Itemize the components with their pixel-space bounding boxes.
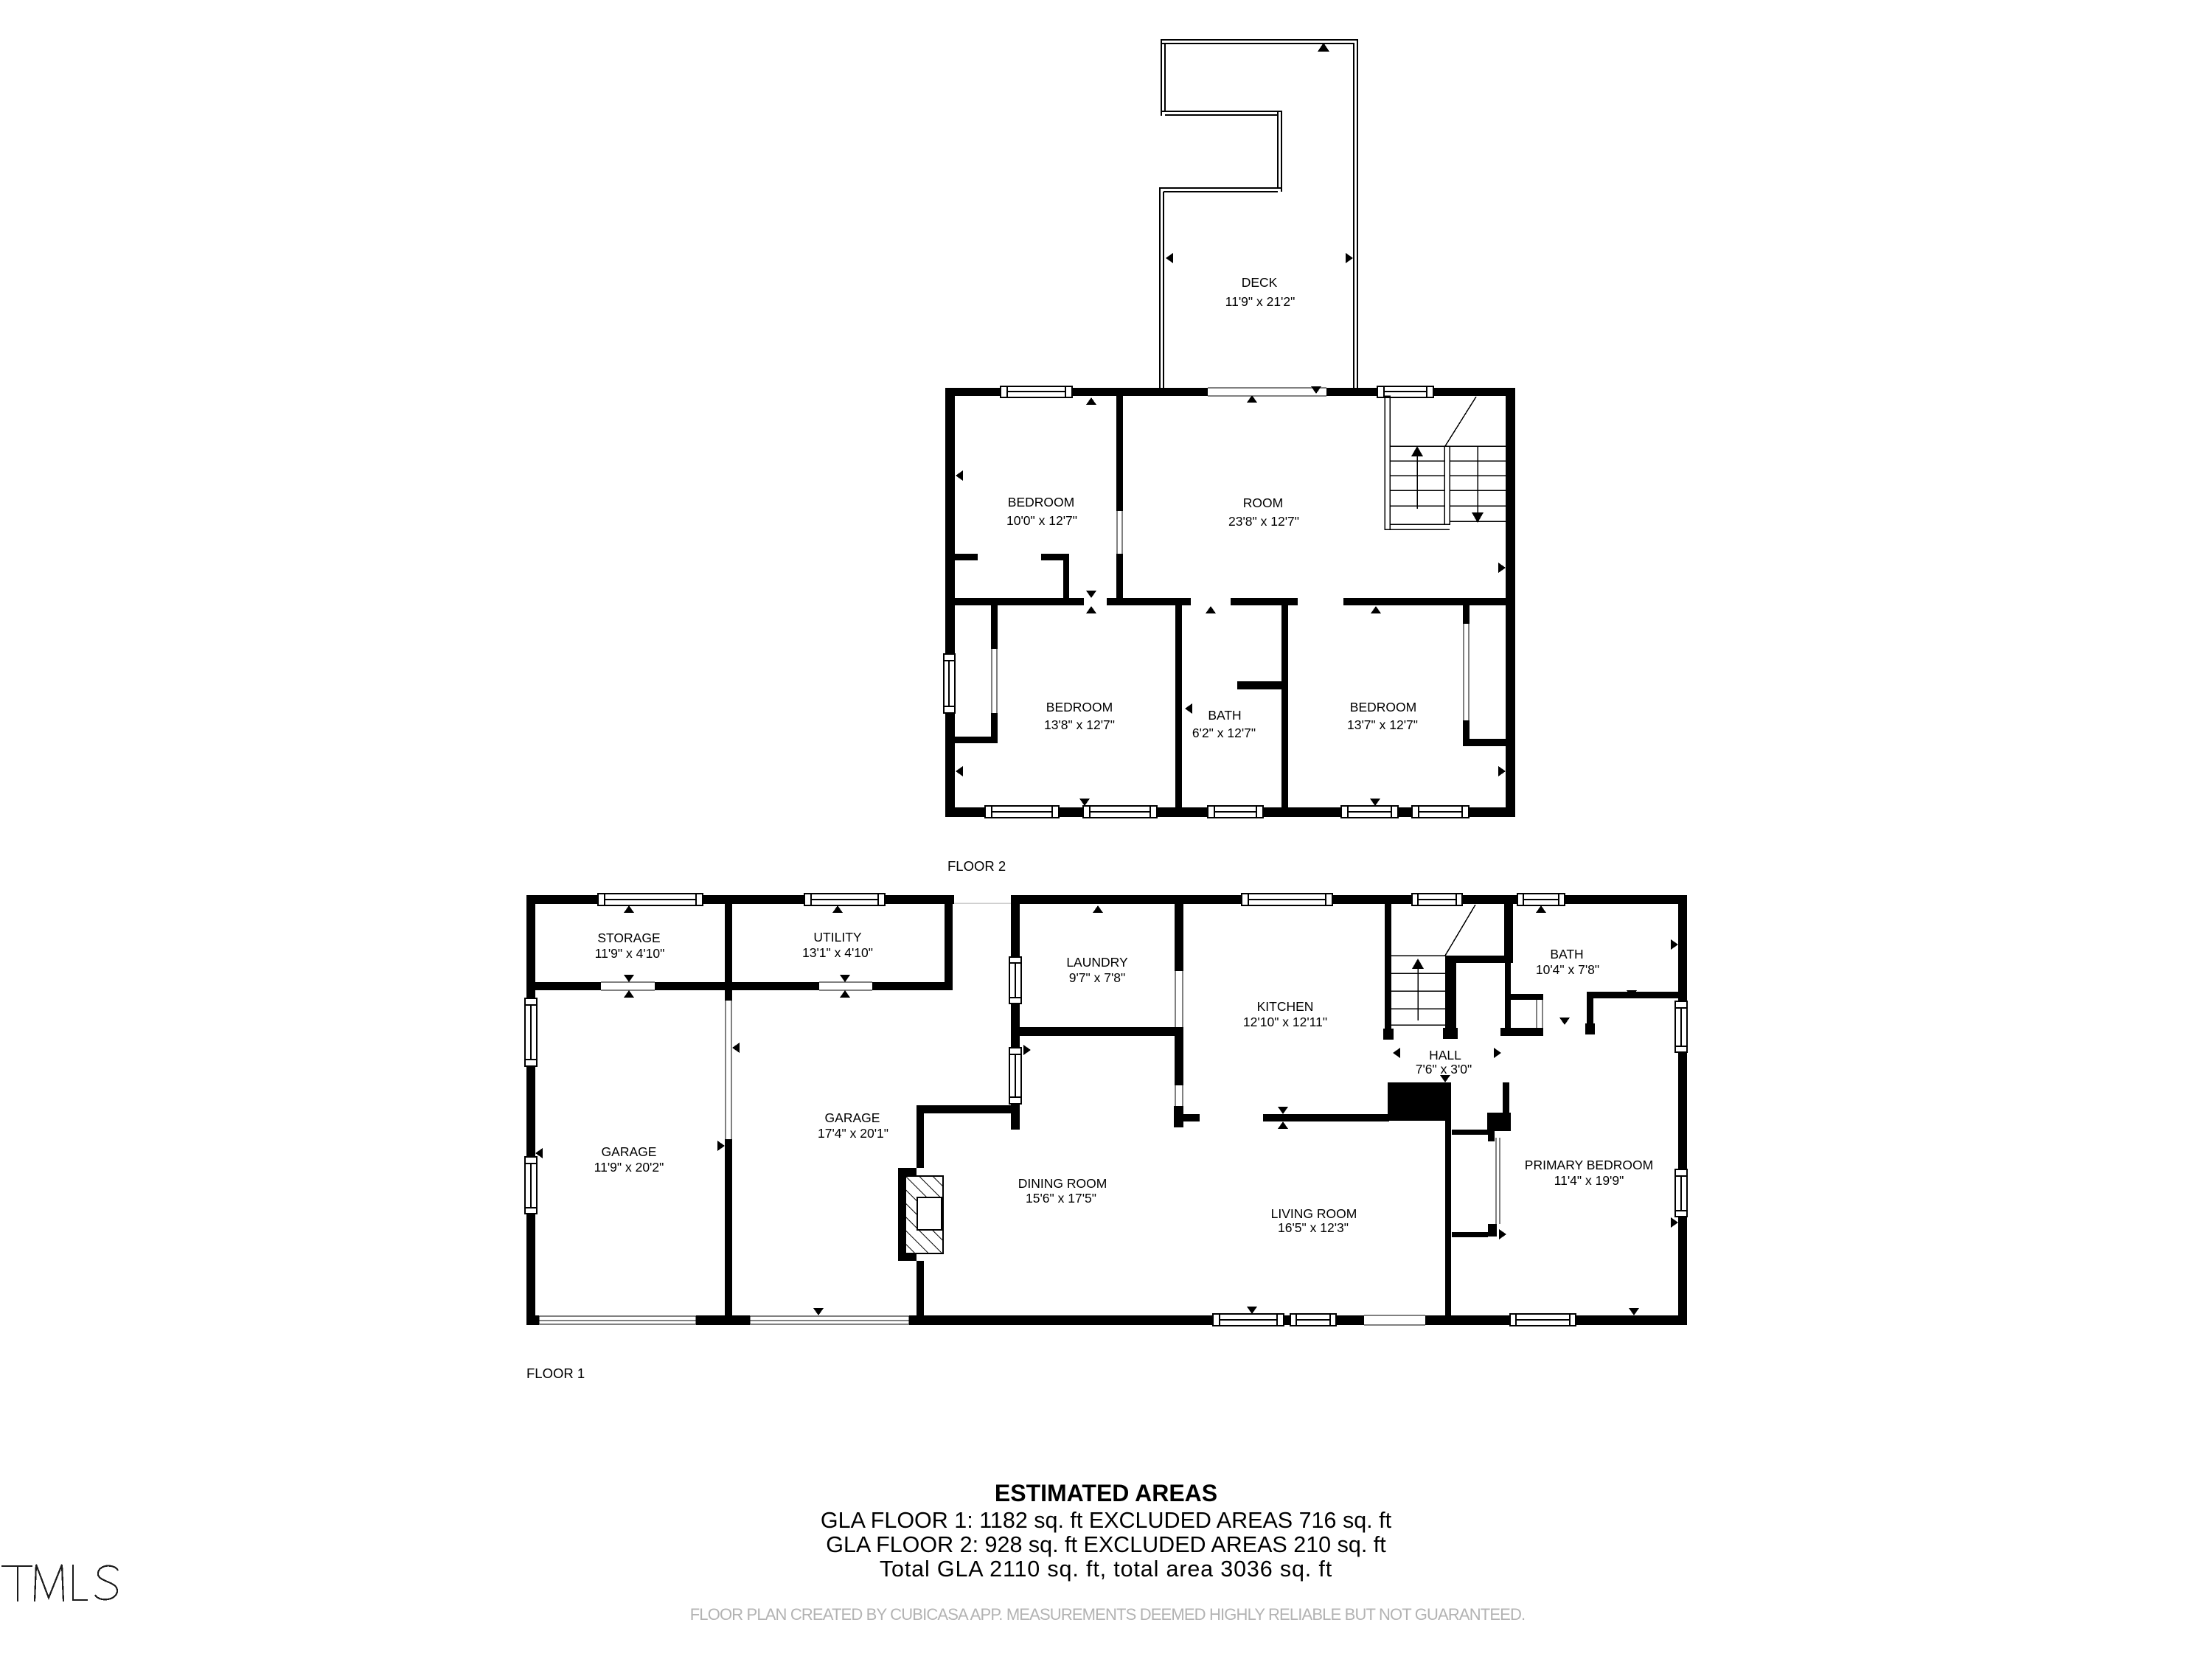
svg-text:BEDROOM: BEDROOM [1350, 700, 1416, 714]
svg-text:10'4" x 7'8": 10'4" x 7'8" [1536, 962, 1599, 977]
svg-text:HALL: HALL [1429, 1048, 1461, 1062]
svg-text:UTILITY: UTILITY [813, 930, 861, 945]
svg-text:KITCHEN: KITCHEN [1257, 999, 1314, 1014]
svg-text:12'10" x 12'11": 12'10" x 12'11" [1243, 1015, 1327, 1029]
svg-text:13'1" x 4'10": 13'1" x 4'10" [802, 945, 873, 960]
svg-text:10'0" x 12'7": 10'0" x 12'7" [1006, 513, 1077, 528]
svg-text:FLOOR 2: FLOOR 2 [947, 858, 1006, 874]
svg-text:6'2" x 12'7": 6'2" x 12'7" [1192, 726, 1256, 740]
svg-text:15'6" x 17'5": 15'6" x 17'5" [1026, 1191, 1096, 1206]
svg-text:DECK: DECK [1242, 275, 1278, 290]
svg-text:11'4" x 19'9": 11'4" x 19'9" [1554, 1173, 1624, 1188]
svg-text:BEDROOM: BEDROOM [1046, 700, 1113, 714]
svg-text:13'7" x 12'7": 13'7" x 12'7" [1347, 717, 1418, 732]
svg-text:13'8" x 12'7": 13'8" x 12'7" [1044, 717, 1115, 732]
svg-text:Total GLA 2110 sq. ft, total a: Total GLA 2110 sq. ft, total area 3036 s… [880, 1557, 1332, 1582]
svg-text:GLA FLOOR 1: 1182 sq. ft EXCLU: GLA FLOOR 1: 1182 sq. ft EXCLUDED AREAS … [821, 1508, 1392, 1533]
svg-text:16'5" x 12'3": 16'5" x 12'3" [1278, 1220, 1349, 1235]
svg-text:11'9" x 20'2": 11'9" x 20'2" [594, 1160, 664, 1175]
svg-text:LAUNDRY: LAUNDRY [1066, 955, 1128, 970]
svg-text:GARAGE: GARAGE [602, 1144, 657, 1159]
svg-text:FLOOR PLAN CREATED BY CUBICASA: FLOOR PLAN CREATED BY CUBICASA APP. MEAS… [690, 1605, 1526, 1624]
svg-text:BATH: BATH [1550, 947, 1583, 961]
svg-text:ROOM: ROOM [1243, 495, 1283, 510]
svg-text:7'6" x 3'0": 7'6" x 3'0" [1416, 1062, 1472, 1077]
svg-text:BEDROOM: BEDROOM [1008, 495, 1074, 509]
svg-text:FLOOR 1: FLOOR 1 [526, 1366, 585, 1381]
svg-text:DINING ROOM: DINING ROOM [1018, 1176, 1107, 1191]
svg-text:11'9" x 21'2": 11'9" x 21'2" [1225, 294, 1295, 309]
svg-text:11'9" x 4'10": 11'9" x 4'10" [595, 946, 665, 961]
svg-text:GARAGE: GARAGE [825, 1110, 880, 1125]
svg-text:9'7" x 7'8": 9'7" x 7'8" [1069, 970, 1126, 985]
svg-text:GLA FLOOR 2: 928 sq. ft EXCLUD: GLA FLOOR 2: 928 sq. ft EXCLUDED AREAS 2… [826, 1532, 1386, 1557]
svg-text:ESTIMATED AREAS: ESTIMATED AREAS [995, 1480, 1217, 1506]
svg-text:PRIMARY BEDROOM: PRIMARY BEDROOM [1525, 1158, 1653, 1172]
svg-text:STORAGE: STORAGE [597, 931, 660, 945]
svg-text:23'8" x 12'7": 23'8" x 12'7" [1228, 514, 1299, 529]
svg-text:BATH: BATH [1208, 708, 1241, 723]
svg-text:17'4" x 20'1": 17'4" x 20'1" [818, 1126, 888, 1141]
svg-text:LIVING ROOM: LIVING ROOM [1271, 1206, 1357, 1221]
